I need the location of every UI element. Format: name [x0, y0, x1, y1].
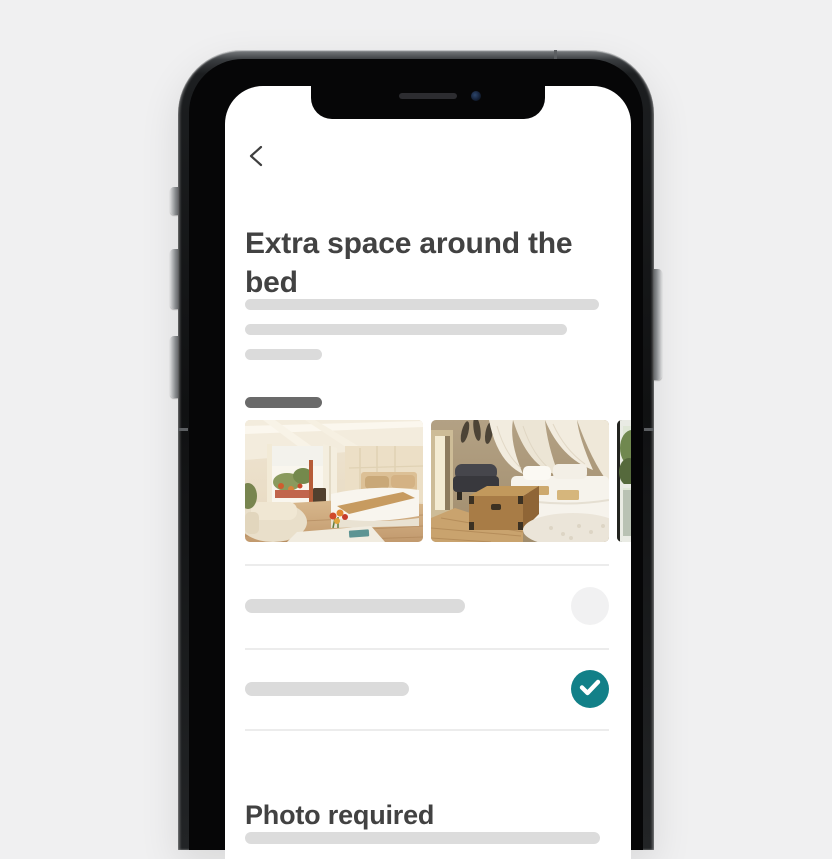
- chevron-left-icon: [248, 145, 265, 170]
- check-icon: [571, 668, 609, 711]
- antenna-line: [644, 428, 654, 431]
- bedroom-photo-illustration: [617, 420, 631, 542]
- antenna-line: [178, 428, 188, 431]
- photo-bedroom-3[interactable]: [617, 420, 631, 542]
- notch: [311, 86, 545, 119]
- text-placeholder-line: [245, 324, 567, 335]
- bedroom-photo-illustration: [245, 420, 423, 542]
- option-circle-unselected[interactable]: [571, 587, 609, 625]
- photo-bedroom-2[interactable]: [431, 420, 609, 542]
- phone-frame: Extra space around the bed: [178, 50, 654, 850]
- photo-bedroom-1[interactable]: [245, 420, 423, 542]
- divider: [245, 648, 609, 650]
- phone-screen: Extra space around the bed: [225, 86, 631, 859]
- section-heading: Photo required: [245, 798, 434, 832]
- divider: [245, 729, 609, 731]
- option-circle-selected[interactable]: [571, 670, 609, 708]
- front-camera: [471, 91, 481, 101]
- phone-bezel: Extra space around the bed: [189, 59, 643, 850]
- text-placeholder-line: [245, 349, 322, 360]
- bedroom-photo-illustration: [431, 420, 609, 542]
- text-placeholder-line: [245, 299, 599, 310]
- option-label-placeholder: [245, 682, 409, 696]
- label-placeholder-dark: [245, 397, 322, 408]
- page-title: Extra space around the bed: [245, 224, 580, 302]
- option-label-placeholder: [245, 599, 465, 613]
- footer-text-placeholder: [245, 832, 600, 844]
- divider: [245, 564, 609, 566]
- speaker-grille: [399, 93, 457, 99]
- back-button[interactable]: [239, 140, 273, 174]
